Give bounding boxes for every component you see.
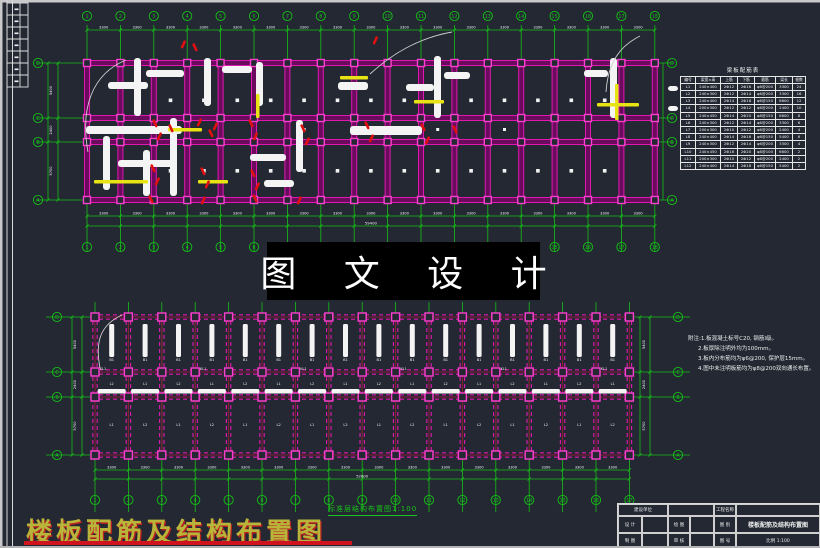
schedule-cell: 2400 (776, 126, 793, 133)
schedule-cell: L1 (681, 83, 696, 90)
schedule-row: L12240×4002Φ142Φ18φ6@15054002 (681, 162, 806, 169)
svg-text:B: B (670, 140, 673, 146)
svg-text:3300: 3300 (500, 212, 510, 216)
svg-text:L1: L1 (577, 423, 581, 427)
schedule-cell: 6600 (776, 98, 793, 105)
svg-text:5700: 5700 (642, 421, 646, 431)
svg-text:59400: 59400 (365, 221, 378, 226)
titleblock-blank (736, 504, 820, 516)
svg-text:KL1: KL1 (400, 367, 406, 371)
svg-text:3300: 3300 (241, 466, 251, 470)
svg-text:L1: L1 (611, 382, 615, 386)
note-line: 3.板内分布筋均为φ6@200, 保护层15mm。 (688, 354, 818, 364)
svg-text:3300: 3300 (333, 26, 343, 30)
svg-text:3300: 3300 (433, 212, 443, 216)
schedule-header: 梁长 (776, 76, 793, 83)
titleblock-blank (668, 504, 714, 516)
schedule-cell: φ6@200 (755, 141, 776, 148)
svg-text:18: 18 (652, 245, 658, 251)
svg-text:B1: B1 (377, 358, 382, 362)
schedule-cell: L10 (681, 148, 696, 155)
svg-text:3: 3 (152, 245, 155, 251)
svg-text:3300: 3300 (133, 26, 143, 30)
schedule-cell: φ6@200 (755, 83, 776, 90)
schedule-row: L8240×4002Φ142Φ16φ6@15054006 (681, 134, 806, 141)
svg-text:16: 16 (585, 245, 591, 251)
svg-text:L2: L2 (176, 382, 180, 386)
svg-text:L2: L2 (410, 423, 414, 427)
top-framing-plan: 1122334455667788991010111112121313141415… (33, 11, 678, 252)
watermark-text: 图 文 设 计 (242, 245, 564, 297)
svg-text:3300: 3300 (300, 26, 310, 30)
svg-text:3300: 3300 (600, 212, 610, 216)
schedule-header: 下筋 (738, 76, 755, 83)
schedule-cell: 4 (793, 141, 806, 148)
schedule-cell: 2Φ12 (738, 155, 755, 162)
schedule-cell: 4 (793, 126, 806, 133)
svg-text:D: D (36, 61, 40, 67)
schedule-cell: 6600 (776, 148, 793, 155)
svg-text:3300: 3300 (266, 212, 276, 216)
svg-text:13: 13 (485, 14, 491, 20)
structural-notes: 附注:1.板混凝土标号C20, 钢筋Ⅰ级。 2.板厚除注明外均为100mm。 3… (688, 334, 818, 374)
schedule-title: 梁板配筋表 (680, 66, 806, 74)
svg-text:D: D (670, 61, 674, 67)
schedule-cell: L7 (681, 126, 696, 133)
svg-text:3300: 3300 (508, 466, 518, 470)
schedule-cell: L9 (681, 141, 696, 148)
schedule-row: L4200×3002Φ122Φ12φ6@200240010 (681, 105, 806, 112)
schedule-cell: 2Φ16 (721, 148, 738, 155)
schedule-row: L7200×3002Φ102Φ12φ6@20024004 (681, 126, 806, 133)
svg-text:13: 13 (493, 498, 499, 504)
svg-text:C: C (36, 116, 40, 122)
svg-text:3300: 3300 (400, 212, 410, 216)
schedule-cell: 5400 (776, 134, 793, 141)
schedule-cell: 2Φ14 (721, 134, 738, 141)
schedule-cell: 6 (793, 119, 806, 126)
schedule-cell: 2 (793, 162, 806, 169)
svg-text:2400: 2400 (73, 379, 77, 389)
titleblock-label: 建设单位 (618, 504, 668, 516)
drawing-title-underline (24, 541, 352, 545)
svg-text:L1: L1 (277, 382, 281, 386)
schedule-header: 上筋 (721, 76, 738, 83)
svg-text:3300: 3300 (567, 26, 577, 30)
svg-text:2400: 2400 (49, 125, 53, 135)
svg-text:12: 12 (451, 14, 457, 20)
schedule-cell: φ6@200 (755, 119, 776, 126)
svg-text:3300: 3300 (575, 466, 585, 470)
schedule-cell: 200×300 (696, 155, 721, 162)
schedule-row: L10240×4502Φ162Φ20φ8@10066002 (681, 148, 806, 155)
titleblock-blank (690, 516, 714, 533)
schedule-cell: 2Φ12 (721, 141, 738, 148)
svg-text:B1: B1 (210, 358, 215, 362)
schedule-cell: 2400 (776, 105, 793, 112)
svg-text:52800: 52800 (356, 474, 369, 479)
schedule-cell: 2Φ12 (721, 90, 738, 97)
svg-text:3300: 3300 (174, 466, 184, 470)
svg-text:3300: 3300 (233, 26, 243, 30)
svg-text:L2: L2 (277, 423, 281, 427)
svg-text:KL1: KL1 (501, 367, 507, 371)
schedule-header: 箍筋 (755, 76, 776, 83)
svg-text:3300: 3300 (99, 212, 109, 216)
svg-text:B1: B1 (109, 358, 114, 362)
svg-text:C: C (676, 370, 680, 376)
svg-text:5: 5 (219, 245, 222, 251)
svg-text:3300: 3300 (441, 466, 451, 470)
schedule-row: L5240×4502Φ142Φ20φ8@15066008 (681, 112, 806, 119)
svg-text:L2: L2 (310, 382, 314, 386)
svg-text:2: 2 (119, 14, 122, 20)
svg-text:5700: 5700 (49, 166, 53, 176)
svg-text:3300: 3300 (308, 466, 318, 470)
schedule-cell: 240×450 (696, 112, 721, 119)
schedule-cell: 240×300 (696, 141, 721, 148)
schedule-row: L1240×4002Φ122Φ16φ6@200330024 (681, 83, 806, 90)
svg-text:3300: 3300 (433, 26, 443, 30)
svg-text:5: 5 (219, 14, 222, 20)
titleblock-label: 图 别 (714, 516, 736, 533)
bottom-plan-caption: 标准层结构布置图1:100 (328, 504, 417, 516)
titleblock-label: 工程名称 (714, 504, 736, 516)
svg-text:B1: B1 (176, 358, 181, 362)
schedule-row: L3240×4002Φ142Φ18φ6@150660012 (681, 98, 806, 105)
schedule-cell: 2Φ16 (738, 83, 755, 90)
schedule-cell: 2Φ14 (721, 162, 738, 169)
svg-text:6: 6 (260, 498, 263, 504)
schedule-cell: 3300 (776, 141, 793, 148)
svg-text:B1: B1 (343, 358, 348, 362)
schedule-cell: φ8@100 (755, 148, 776, 155)
schedule-cell: 240×450 (696, 148, 721, 155)
schedule-cell: 240×400 (696, 134, 721, 141)
svg-text:B1: B1 (276, 358, 281, 362)
watermark-band: 图 文 设 计 (267, 242, 540, 300)
schedule-cell: 6 (793, 134, 806, 141)
schedule-cell: 2Φ12 (738, 126, 755, 133)
schedule-cell: L4 (681, 105, 696, 112)
schedule-cell: 2Φ18 (738, 98, 755, 105)
schedule-cell: 2Φ18 (738, 162, 755, 169)
schedule-cell: 200×300 (696, 126, 721, 133)
svg-text:2: 2 (127, 498, 130, 504)
svg-text:8: 8 (327, 498, 330, 504)
svg-text:B1: B1 (510, 358, 515, 362)
schedule-cell: L11 (681, 155, 696, 162)
svg-text:D: D (55, 315, 59, 321)
svg-text:D: D (676, 315, 680, 321)
svg-text:17: 17 (618, 14, 624, 20)
title-block: 建设单位 工程名称 设 计 绘 图 图 别 楼板配筋及结构布置图 制 图 审 核… (617, 503, 820, 548)
svg-text:3300: 3300 (166, 26, 176, 30)
schedule-header: 梁宽×高 (696, 76, 721, 83)
svg-text:8: 8 (319, 14, 322, 20)
svg-text:L2: L2 (510, 382, 514, 386)
svg-text:4: 4 (186, 245, 189, 251)
svg-text:C: C (55, 370, 59, 376)
svg-text:L1: L1 (243, 423, 247, 427)
rebar-schedule: 梁板配筋表 编号梁宽×高上筋下筋箍筋梁长根数L1240×4002Φ122Φ16φ… (680, 66, 806, 170)
svg-text:L2: L2 (143, 423, 147, 427)
svg-text:3300: 3300 (341, 466, 351, 470)
svg-text:3300: 3300 (133, 212, 143, 216)
svg-text:5400: 5400 (642, 339, 646, 349)
schedule-cell: 3300 (776, 90, 793, 97)
svg-text:L1: L1 (310, 423, 314, 427)
schedule-cell: 2Φ12 (721, 105, 738, 112)
svg-text:A: A (55, 453, 59, 459)
schedule-cell: 2Φ20 (738, 148, 755, 155)
titleblock-label: 设 计 (618, 516, 642, 533)
svg-text:L1: L1 (477, 382, 481, 386)
svg-text:L1: L1 (176, 423, 180, 427)
svg-text:3300: 3300 (333, 212, 343, 216)
svg-text:14: 14 (518, 14, 524, 20)
svg-text:L2: L2 (577, 382, 581, 386)
note-line: 4.图中未注明板筋均为φ8@200双向通长布置。 (688, 364, 818, 374)
svg-text:3300: 3300 (400, 26, 410, 30)
svg-text:16: 16 (593, 498, 599, 504)
note-line: 2.板厚除注明外均为100mm。 (688, 344, 818, 354)
schedule-cell: 3300 (776, 119, 793, 126)
svg-text:L2: L2 (243, 382, 247, 386)
svg-text:3300: 3300 (366, 212, 376, 216)
bottom-framing-plan: 1234567891011121314151617B1L1L2B1L2L1B1L… (46, 302, 690, 512)
schedule-cell: 12 (793, 98, 806, 105)
schedule-cell: 2Φ10 (721, 126, 738, 133)
schedule-cell: φ6@200 (755, 105, 776, 112)
svg-text:L1: L1 (510, 423, 514, 427)
svg-text:2400: 2400 (642, 379, 646, 389)
svg-text:3300: 3300 (266, 26, 276, 30)
svg-text:B1: B1 (310, 358, 315, 362)
schedule-cell: 6600 (776, 112, 793, 119)
svg-text:L2: L2 (544, 423, 548, 427)
svg-text:3300: 3300 (533, 212, 543, 216)
schedule-cell: 5400 (776, 162, 793, 169)
svg-text:3300: 3300 (634, 26, 644, 30)
svg-text:L1: L1 (544, 382, 548, 386)
svg-text:10: 10 (393, 498, 399, 504)
note-line: 附注:1.板混凝土标号C20, 钢筋Ⅰ级。 (688, 334, 818, 344)
schedule-cell: φ8@150 (755, 112, 776, 119)
svg-text:L2: L2 (343, 423, 347, 427)
svg-text:14: 14 (526, 498, 532, 504)
svg-text:B1: B1 (410, 358, 415, 362)
svg-text:5: 5 (227, 498, 230, 504)
svg-text:3300: 3300 (475, 466, 485, 470)
schedule-cell: L5 (681, 112, 696, 119)
svg-text:9: 9 (353, 14, 356, 20)
svg-text:3300: 3300 (541, 466, 551, 470)
schedule-cell: 2Φ14 (721, 112, 738, 119)
svg-text:KL1: KL1 (601, 367, 607, 371)
schedule-row: L2240×3002Φ122Φ14φ6@200330016 (681, 90, 806, 97)
svg-text:4: 4 (194, 498, 197, 504)
svg-text:17: 17 (618, 245, 624, 251)
schedule-cell: L8 (681, 134, 696, 141)
svg-text:3300: 3300 (567, 212, 577, 216)
schedule-table: 编号梁宽×高上筋下筋箍筋梁长根数L1240×4002Φ122Φ16φ6@2003… (680, 76, 806, 171)
svg-text:3300: 3300 (199, 26, 209, 30)
svg-text:3300: 3300 (166, 212, 176, 216)
svg-text:7: 7 (294, 498, 297, 504)
svg-text:B1: B1 (443, 358, 448, 362)
svg-text:L1: L1 (343, 382, 347, 386)
schedule-cell: 2Φ14 (721, 98, 738, 105)
svg-text:B1: B1 (610, 358, 615, 362)
svg-text:1: 1 (85, 245, 88, 251)
titleblock-label: 绘 图 (668, 516, 690, 533)
schedule-cell: 240×400 (696, 83, 721, 90)
svg-text:6: 6 (252, 14, 255, 20)
svg-text:3300: 3300 (300, 212, 310, 216)
svg-text:3300: 3300 (366, 26, 376, 30)
schedule-cell: 16 (793, 90, 806, 97)
schedule-cell: φ6@200 (755, 155, 776, 162)
svg-text:3300: 3300 (608, 466, 618, 470)
schedule-cell: 2Φ20 (738, 112, 755, 119)
svg-text:3300: 3300 (199, 212, 209, 216)
svg-text:L2: L2 (110, 382, 114, 386)
schedule-cell: φ6@150 (755, 134, 776, 141)
svg-text:7: 7 (286, 14, 289, 20)
svg-text:L2: L2 (444, 382, 448, 386)
schedule-cell: 2400 (776, 155, 793, 162)
svg-text:B: B (55, 395, 58, 401)
svg-text:3300: 3300 (408, 466, 418, 470)
svg-text:11: 11 (426, 498, 432, 504)
svg-text:1: 1 (93, 498, 96, 504)
svg-text:L2: L2 (210, 423, 214, 427)
schedule-cell: 2Φ12 (738, 105, 755, 112)
svg-text:B: B (36, 140, 39, 146)
svg-text:B1: B1 (544, 358, 549, 362)
svg-text:L1: L1 (377, 423, 381, 427)
schedule-cell: 10 (793, 105, 806, 112)
schedule-cell: 24 (793, 83, 806, 90)
svg-text:5400: 5400 (49, 85, 53, 95)
schedule-cell: L6 (681, 119, 696, 126)
schedule-cell: 3300 (776, 83, 793, 90)
svg-text:KL1: KL1 (100, 367, 106, 371)
titleblock-blank (642, 516, 668, 533)
svg-text:L2: L2 (477, 423, 481, 427)
svg-text:B1: B1 (243, 358, 248, 362)
svg-text:15: 15 (552, 14, 558, 20)
svg-text:L1: L1 (410, 382, 414, 386)
schedule-cell: 2Φ12 (721, 83, 738, 90)
schedule-cell: 2Φ10 (721, 155, 738, 162)
schedule-header: 根数 (793, 76, 806, 83)
schedule-cell: 240×300 (696, 90, 721, 97)
svg-text:L2: L2 (377, 382, 381, 386)
svg-text:5700: 5700 (73, 421, 77, 431)
svg-text:B1: B1 (477, 358, 482, 362)
svg-text:B1: B1 (577, 358, 582, 362)
schedule-cell: 240×400 (696, 162, 721, 169)
svg-text:3300: 3300 (99, 26, 109, 30)
cad-viewport: 1122334455667788991010111112121313141415… (0, 0, 820, 548)
svg-text:KL1: KL1 (200, 367, 206, 371)
svg-text:5400: 5400 (73, 339, 77, 349)
schedule-cell: 200×300 (696, 105, 721, 112)
svg-text:9: 9 (361, 498, 364, 504)
schedule-cell: 2Φ14 (738, 141, 755, 148)
schedule-row: L11200×3002Φ102Φ12φ6@20024002 (681, 155, 806, 162)
svg-text:A: A (36, 198, 40, 204)
svg-text:B1: B1 (143, 358, 148, 362)
schedule-cell: 240×300 (696, 119, 721, 126)
svg-text:3300: 3300 (600, 26, 610, 30)
schedule-cell: 2Φ14 (738, 90, 755, 97)
schedule-cell: φ6@200 (755, 126, 776, 133)
svg-text:2: 2 (119, 245, 122, 251)
svg-text:3300: 3300 (233, 212, 243, 216)
schedule-cell: L3 (681, 98, 696, 105)
svg-text:L2: L2 (611, 423, 615, 427)
svg-text:12: 12 (459, 498, 465, 504)
svg-text:1: 1 (85, 14, 88, 20)
schedule-row: L6240×3002Φ122Φ14φ6@20033006 (681, 119, 806, 126)
svg-text:L1: L1 (444, 423, 448, 427)
schedule-cell: L2 (681, 90, 696, 97)
svg-text:4: 4 (186, 14, 189, 20)
svg-text:3300: 3300 (141, 466, 151, 470)
svg-text:11: 11 (418, 14, 424, 20)
schedule-cell: L12 (681, 162, 696, 169)
svg-text:3300: 3300 (634, 212, 644, 216)
svg-text:B: B (676, 395, 679, 401)
svg-text:3300: 3300 (374, 466, 384, 470)
schedule-cell: φ6@200 (755, 90, 776, 97)
schedule-header: 编号 (681, 76, 696, 83)
svg-text:16: 16 (585, 14, 591, 20)
svg-text:15: 15 (560, 498, 566, 504)
svg-text:3300: 3300 (533, 26, 543, 30)
schedule-cell: 8 (793, 112, 806, 119)
schedule-cell: φ6@150 (755, 98, 776, 105)
schedule-cell: 2Φ14 (738, 119, 755, 126)
svg-text:A: A (676, 453, 680, 459)
svg-text:L1: L1 (110, 423, 114, 427)
svg-text:3300: 3300 (274, 466, 284, 470)
titleblock-drawing-name: 楼板配筋及结构布置图 (736, 516, 820, 533)
schedule-cell: 2 (793, 155, 806, 162)
svg-text:3300: 3300 (467, 26, 477, 30)
svg-text:10: 10 (385, 14, 391, 20)
svg-text:3300: 3300 (207, 466, 217, 470)
svg-text:3300: 3300 (107, 466, 117, 470)
schedule-cell: φ6@150 (755, 162, 776, 169)
svg-text:C: C (670, 116, 674, 122)
svg-text:18: 18 (652, 14, 658, 20)
schedule-cell: 2Φ16 (738, 134, 755, 141)
svg-text:L1: L1 (210, 382, 214, 386)
schedule-cell: 2 (793, 148, 806, 155)
svg-text:3: 3 (160, 498, 163, 504)
svg-text:L1: L1 (143, 382, 147, 386)
svg-text:3300: 3300 (500, 26, 510, 30)
svg-text:KL1: KL1 (300, 367, 306, 371)
schedule-cell: 240×400 (696, 98, 721, 105)
svg-text:A: A (670, 198, 674, 204)
svg-text:3300: 3300 (467, 212, 477, 216)
schedule-cell: 2Φ12 (721, 119, 738, 126)
